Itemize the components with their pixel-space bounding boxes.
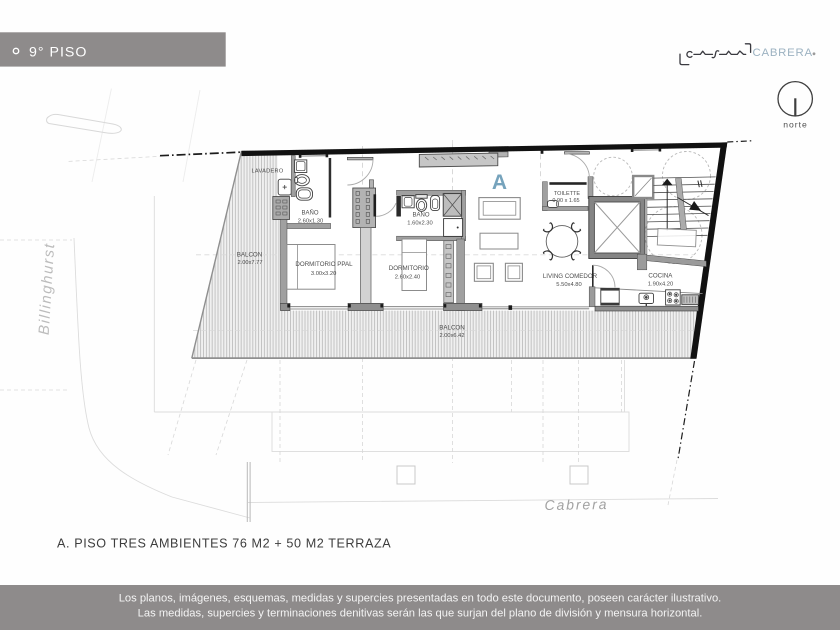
svg-text:2.00x7.77: 2.00x7.77 (238, 260, 263, 266)
svg-text:A. PISO TRES AMBIENTES 76 M2 +: A. PISO TRES AMBIENTES 76 M2 + 50 M2 TER… (57, 537, 391, 551)
svg-text:norte: norte (783, 120, 808, 130)
svg-text:Billinghurst: Billinghurst (36, 242, 59, 335)
svg-text:2.60x2.40: 2.60x2.40 (395, 274, 420, 280)
svg-text:A: A (492, 171, 507, 194)
svg-text:LAVADERO: LAVADERO (251, 168, 283, 174)
svg-text:5.50x4.80: 5.50x4.80 (556, 282, 581, 288)
svg-text:1.60x2.30: 1.60x2.30 (407, 221, 432, 227)
svg-text:CABRERA: CABRERA (753, 47, 813, 59)
svg-text:BALCON: BALCON (237, 251, 262, 258)
svg-text:BAÑO: BAÑO (412, 212, 429, 219)
svg-text:Las medidas, supercies y termi: Las medidas, supercies y terminaciones d… (138, 608, 703, 620)
svg-text:3.00x3.20: 3.00x3.20 (311, 271, 336, 277)
svg-text:DORMITORIO PPAL: DORMITORIO PPAL (295, 261, 353, 268)
svg-text:TOILETTE: TOILETTE (554, 191, 581, 197)
svg-text:LIVING COMEDOR: LIVING COMEDOR (543, 273, 598, 280)
svg-text:BAÑO: BAÑO (301, 210, 318, 217)
svg-text:2.00x6.42: 2.00x6.42 (440, 333, 465, 339)
svg-text:Cabrera: Cabrera (544, 496, 608, 513)
svg-text:BALCON: BALCON (439, 325, 464, 332)
svg-text:1.90x4.20: 1.90x4.20 (648, 281, 673, 287)
svg-text:Los planos, imágenes, esquemas: Los planos, imágenes, esquemas, medidas … (119, 593, 722, 605)
svg-text:COCINA: COCINA (648, 273, 673, 280)
svg-text:9° PISO: 9° PISO (29, 44, 87, 60)
svg-text:0.90 x 1.65: 0.90 x 1.65 (552, 198, 579, 204)
svg-text:DORMITORIO: DORMITORIO (389, 265, 429, 272)
